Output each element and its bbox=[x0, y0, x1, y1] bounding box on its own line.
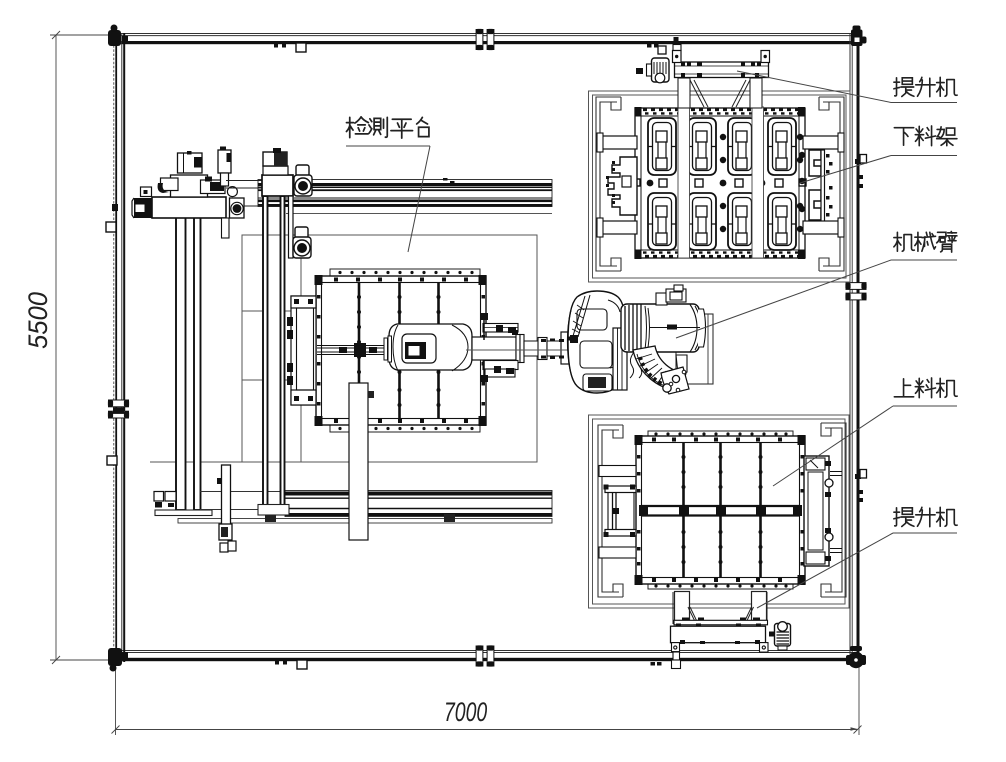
svg-text:7000: 7000 bbox=[444, 697, 487, 727]
svg-text:5500: 5500 bbox=[22, 292, 53, 349]
